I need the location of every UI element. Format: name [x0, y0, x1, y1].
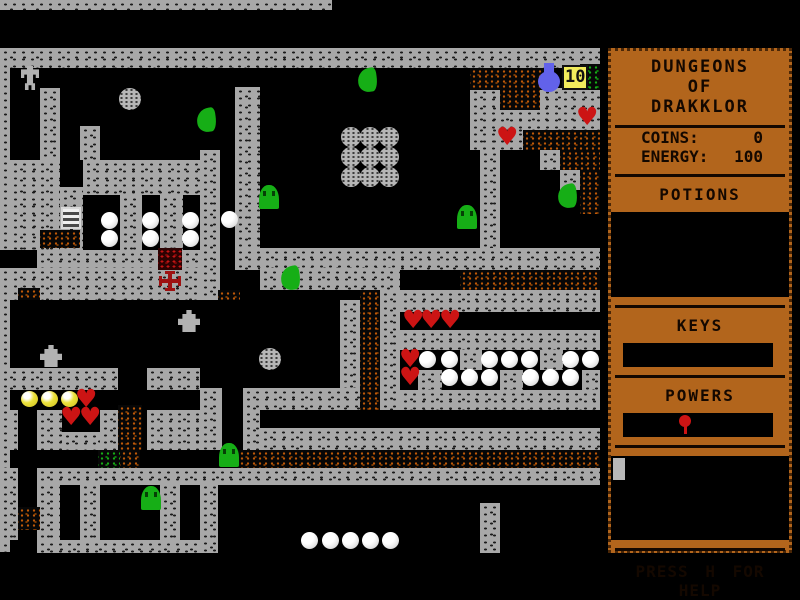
rubble-patch — [18, 288, 40, 300]
pearl-sprite — [419, 351, 436, 368]
divider — [615, 174, 785, 177]
rubble-patch — [218, 290, 240, 300]
pearl-sprite — [342, 532, 359, 549]
pearl-sprite — [362, 532, 379, 549]
yellowball-sprite — [41, 391, 58, 407]
wall-block — [460, 350, 482, 370]
wall-block — [480, 150, 500, 248]
title-line: DRAKKLOR — [611, 97, 789, 117]
badge-sprite: 10 — [562, 65, 588, 90]
pearl-sprite — [441, 351, 458, 368]
golem-sprite — [21, 66, 39, 90]
gumdrop-sprite — [219, 443, 239, 467]
wall-block — [147, 410, 200, 450]
rubble-patch — [460, 270, 600, 290]
yellowball-sprite — [21, 391, 38, 407]
graypearl-sprite — [379, 127, 399, 147]
gumdrop-sprite — [259, 185, 279, 209]
cross-sprite — [159, 271, 181, 291]
wall-block — [540, 150, 560, 170]
wall-block — [10, 410, 18, 450]
inventory-cursor-icon — [613, 458, 625, 480]
pearl-sprite — [142, 230, 159, 247]
divider — [615, 445, 785, 448]
divider — [615, 375, 785, 378]
wall-block — [0, 368, 118, 390]
coins-stat: COINS: 0 — [611, 128, 789, 147]
wall-block — [62, 432, 100, 450]
wall-block — [260, 428, 600, 450]
powers-header: POWERS — [611, 386, 789, 405]
wall-block — [243, 410, 260, 450]
heart-sprite: ♥ — [399, 368, 419, 386]
wall-block — [37, 250, 158, 268]
pearl-sprite — [101, 212, 118, 229]
gumdrop-sprite — [457, 205, 477, 229]
pearl-sprite — [542, 369, 559, 386]
rubble-patch — [40, 230, 80, 248]
heart-sprite: ♥ — [402, 311, 422, 329]
pearl-sprite — [182, 212, 199, 229]
rubble-patch — [118, 405, 142, 450]
wall-block — [160, 195, 183, 250]
rubble-patch — [500, 88, 540, 110]
rubble-patch — [523, 130, 600, 150]
sidebar-panel: DUNGEONS OF DRAKKLOR COINS: 0 ENERGY: 10… — [608, 48, 792, 553]
energy-value: 100 — [734, 147, 763, 166]
title-line: OF — [611, 77, 789, 97]
slug-sprite — [195, 107, 217, 133]
wall-block — [243, 388, 360, 410]
wall-block — [0, 0, 332, 10]
coins-label: COINS: — [641, 128, 699, 147]
pearl-sprite — [382, 532, 399, 549]
graypearl-sprite — [341, 147, 361, 167]
pearl-sprite — [182, 230, 199, 247]
pearl-sprite — [142, 212, 159, 229]
graypearl-sprite — [341, 127, 361, 147]
wall-block — [37, 410, 62, 450]
rubble-patch — [120, 450, 140, 468]
wall-block — [200, 388, 222, 450]
pearl-sprite — [522, 369, 539, 386]
game-screen: 10♥♥♥♥♥♥♥♥♥♥ DUNGEONS OF DRAKKLOR COINS:… — [0, 0, 800, 600]
rubble-patch — [238, 450, 600, 468]
wall-block — [200, 150, 220, 300]
wall-block — [80, 126, 100, 160]
slug-sprite — [356, 67, 378, 93]
heart-sprite: ♥ — [420, 311, 440, 329]
pearl-sprite — [562, 351, 579, 368]
potions-inventory — [611, 212, 789, 297]
wall-block — [582, 370, 600, 390]
wall-block — [182, 250, 200, 268]
divider — [615, 305, 785, 308]
graypearl-sprite — [259, 348, 281, 370]
wall-block — [380, 290, 400, 410]
wall-block — [37, 468, 600, 485]
pearl-sprite — [501, 351, 518, 368]
wall-block — [480, 503, 500, 553]
game-map[interactable]: 10♥♥♥♥♥♥♥♥♥♥ — [0, 0, 600, 600]
wall-block — [0, 483, 18, 540]
graypearl-sprite — [379, 147, 399, 167]
coins-value: 0 — [753, 128, 763, 147]
energy-stat: ENERGY: 100 — [611, 147, 789, 166]
pearl-sprite — [582, 351, 599, 368]
pearl-sprite — [322, 532, 339, 549]
heart-sprite: ♥ — [60, 408, 80, 426]
help-text: PRESS H FOR HELP — [611, 562, 789, 600]
wall-block — [418, 370, 442, 390]
rubble-patch — [560, 150, 600, 170]
wall-block — [37, 540, 200, 553]
pearl-sprite — [562, 369, 579, 386]
graypearl-sprite — [360, 127, 380, 147]
wall-block — [147, 368, 200, 390]
hydrant-sprite — [40, 345, 62, 367]
keys-header: KEYS — [611, 316, 789, 335]
game-title: DUNGEONS OF DRAKKLOR — [611, 57, 789, 117]
wall-block — [235, 87, 260, 248]
pearl-sprite — [301, 532, 318, 549]
title-line: DUNGEONS — [611, 57, 789, 77]
energy-label: ENERGY: — [641, 147, 708, 166]
divider — [615, 548, 785, 551]
ladder-sprite — [61, 207, 81, 229]
wall-block — [100, 410, 118, 450]
graypearl-sprite — [341, 167, 361, 187]
gumdrop-sprite — [141, 486, 161, 510]
wall-block — [10, 160, 60, 195]
green-rubble-patch — [98, 450, 120, 468]
pearl-sprite — [441, 369, 458, 386]
pearl-sprite — [101, 230, 118, 247]
items-inventory — [611, 456, 789, 540]
pearl-sprite — [461, 369, 478, 386]
red-chest-block — [158, 248, 182, 270]
keys-inventory — [623, 343, 773, 367]
heart-sprite: ♥ — [439, 311, 459, 329]
pearl-sprite — [481, 369, 498, 386]
rubble-patch — [18, 507, 40, 530]
heart-sprite: ♥ — [496, 128, 516, 146]
graypearl-sprite — [379, 167, 399, 187]
rubble-patch — [580, 170, 600, 190]
rubble-patch — [580, 190, 600, 214]
pearl-sprite — [481, 351, 498, 368]
power-pin-icon — [679, 415, 691, 427]
heart-sprite: ♥ — [79, 408, 99, 426]
wall-block — [340, 300, 360, 388]
rubble-patch — [360, 290, 380, 410]
flask-sprite — [536, 62, 562, 92]
wall-block — [40, 88, 60, 160]
wall-block — [0, 468, 18, 483]
powers-inventory — [623, 413, 773, 437]
wall-block — [83, 160, 200, 195]
wall-block — [540, 350, 563, 370]
hydrant-sprite — [178, 310, 200, 332]
heart-sprite: ♥ — [576, 108, 596, 126]
graypearl-sprite — [360, 147, 380, 167]
wall-block — [200, 483, 218, 553]
wall-block — [0, 48, 600, 68]
wall-block — [500, 370, 523, 390]
graypearl-sprite — [360, 167, 380, 187]
pearl-sprite — [221, 211, 238, 228]
wall-block — [120, 195, 142, 250]
wall-block — [400, 390, 600, 410]
graypearl-sprite — [119, 88, 141, 110]
potions-header: POTIONS — [611, 185, 789, 204]
wall-block — [0, 68, 10, 250]
pearl-sprite — [521, 351, 538, 368]
